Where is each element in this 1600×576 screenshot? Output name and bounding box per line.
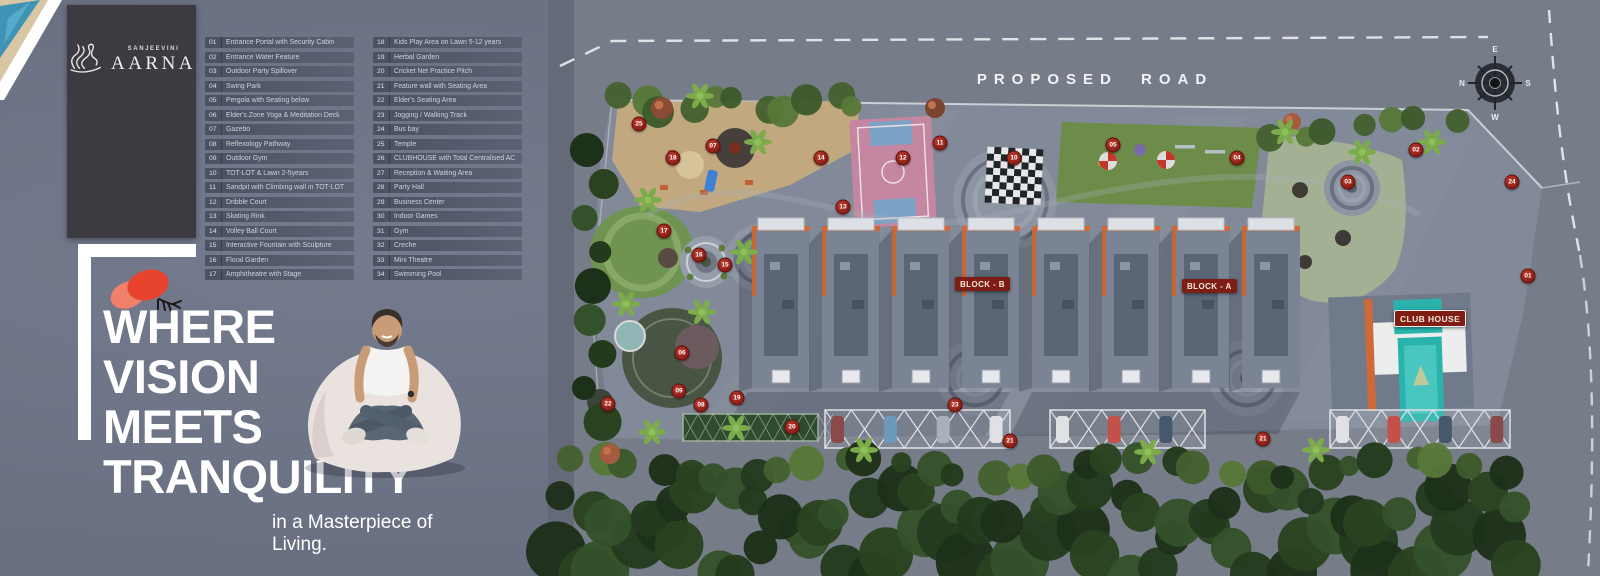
legend-item-label: Cricket Net Practice Pitch bbox=[394, 66, 472, 77]
legend-item-number: 11 bbox=[209, 182, 222, 193]
legend-item-label: Entrance Portal with Security Cabin bbox=[226, 37, 334, 48]
person-photo bbox=[290, 278, 480, 480]
brand-tagline: SANJEEVINI bbox=[128, 46, 180, 52]
legend-item-label: Reflexology Pathway bbox=[226, 139, 290, 150]
legend-item-number: 33 bbox=[377, 255, 390, 266]
legend-item-label: Gym bbox=[394, 226, 409, 237]
legend-item: 22Elder's Seating Area bbox=[373, 95, 522, 106]
legend-item-number: 03 bbox=[209, 66, 222, 77]
legend-item-label: Elder's Seating Area bbox=[394, 95, 456, 106]
legend-item: 14Volley Ball Court bbox=[205, 226, 354, 237]
legend-item: 28Party Hall bbox=[373, 182, 522, 193]
legend-item-number: 05 bbox=[209, 95, 222, 106]
legend-item: 25Temple bbox=[373, 139, 522, 150]
legend-item: 06Elder's Zone Yoga & Meditation Deck bbox=[205, 110, 354, 121]
legend-item: 10TOT-LOT & Lawn 2-5years bbox=[205, 168, 354, 179]
legend-item-number: 06 bbox=[209, 110, 222, 121]
legend-item: 04Swing Park bbox=[205, 81, 354, 92]
legend-item-number: 17 bbox=[209, 269, 222, 280]
legend-item-number: 16 bbox=[209, 255, 222, 266]
legend-item-number: 02 bbox=[209, 52, 222, 63]
legend-item-label: Business Center bbox=[394, 197, 445, 208]
legend-item-label: Entrance Water Feature bbox=[226, 52, 299, 63]
legend-item-label: Floral Garden bbox=[226, 255, 268, 266]
legend-item-number: 22 bbox=[377, 95, 390, 106]
brochure-spread: PROPOSED ROAD E N S W bbox=[0, 0, 1600, 576]
legend-item: 19Herbal Garden bbox=[373, 52, 522, 63]
fountain-plaza bbox=[680, 236, 732, 288]
legend-item: 30Indoor Games bbox=[373, 211, 522, 222]
cricket-net bbox=[683, 414, 833, 441]
legend-item: 02Entrance Water Feature bbox=[205, 52, 354, 63]
legend-item-number: 32 bbox=[377, 240, 390, 251]
legend-item: 03Outdoor Party Spillover bbox=[205, 66, 354, 77]
headline-subtitle: in a Masterpiece of Living. bbox=[272, 512, 462, 556]
swan-logo-icon bbox=[67, 40, 107, 80]
legend-item-label: Swing Park bbox=[226, 81, 261, 92]
legend-item: 31Gym bbox=[373, 226, 522, 237]
legend-item-number: 24 bbox=[377, 124, 390, 135]
legend-item-number: 21 bbox=[377, 81, 390, 92]
legend-item-label: Sandpit with Climbing wall in TOT-LOT bbox=[226, 182, 344, 193]
legend-item-number: 13 bbox=[209, 211, 222, 222]
legend-item-label: Skating Rink bbox=[226, 211, 265, 222]
brand-name: AARNA bbox=[111, 53, 196, 75]
compass-top: E bbox=[1492, 45, 1498, 54]
legend-item: 24Bus bay bbox=[373, 124, 522, 135]
legend-item: 01Entrance Portal with Security Cabin bbox=[205, 37, 354, 48]
legend-column-1: 01Entrance Portal with Security Cabin02E… bbox=[205, 37, 354, 284]
legend-item: 21Feature wall with Seating Area bbox=[373, 81, 522, 92]
legend-item-label: Feature wall with Seating Area bbox=[394, 81, 487, 92]
legend-item-number: 26 bbox=[377, 153, 390, 164]
legend-item-number: 19 bbox=[377, 52, 390, 63]
legend-item-label: Outdoor Party Spillover bbox=[226, 66, 297, 77]
legend-item-label: Kids Play Area on Lawn 5-12 years bbox=[394, 37, 501, 48]
legend-item-number: 01 bbox=[209, 37, 222, 48]
legend-item-label: Party Hall bbox=[394, 182, 424, 193]
frame-bracket-horizontal bbox=[78, 244, 196, 257]
legend-item-label: Herbal Garden bbox=[394, 52, 439, 63]
legend-item-number: 31 bbox=[377, 226, 390, 237]
legend-item-label: Interactive Fountain with Sculpture bbox=[226, 240, 332, 251]
legend-item-label: Outdoor Gym bbox=[226, 153, 267, 164]
legend-item: 32Creche bbox=[373, 240, 522, 251]
legend-item-label: Jogging / Walking Track bbox=[394, 110, 467, 121]
legend-item: 15Interactive Fountain with Sculpture bbox=[205, 240, 354, 251]
legend-item-number: 29 bbox=[377, 197, 390, 208]
legend-item-number: 10 bbox=[209, 168, 222, 179]
legend-item-number: 08 bbox=[209, 139, 222, 150]
legend-item-label: Mini Theatre bbox=[394, 255, 432, 266]
legend-item-label: Elder's Zone Yoga & Meditation Deck bbox=[226, 110, 340, 121]
frame-bracket-vertical bbox=[78, 244, 91, 440]
compass-right: S bbox=[1525, 79, 1531, 88]
compass-bottom: W bbox=[1491, 113, 1499, 122]
legend-item-number: 23 bbox=[377, 110, 390, 121]
legend-item-number: 28 bbox=[377, 182, 390, 193]
legend-item-number: 12 bbox=[209, 197, 222, 208]
legend-item: 11Sandpit with Climbing wall in TOT-LOT bbox=[205, 182, 354, 193]
clubhouse bbox=[1328, 293, 1474, 425]
legend-item-label: Reception & Waiting Area bbox=[394, 168, 472, 179]
legend-item-label: Temple bbox=[394, 139, 416, 150]
corner-photo-fragment bbox=[0, 0, 70, 100]
legend-item-label: Bus bay bbox=[394, 124, 419, 135]
legend-item: 18Kids Play Area on Lawn 5-12 years bbox=[373, 37, 522, 48]
legend-item-number: 14 bbox=[209, 226, 222, 237]
legend-item: 20Cricket Net Practice Pitch bbox=[373, 66, 522, 77]
legend-item: 07Gazebo bbox=[205, 124, 354, 135]
legend-item: 05Pergola with Seating below bbox=[205, 95, 354, 106]
legend-item: 27Reception & Waiting Area bbox=[373, 168, 522, 179]
legend-item: 16Floral Garden bbox=[205, 255, 354, 266]
legend-item-number: 25 bbox=[377, 139, 390, 150]
legend-item: 23Jogging / Walking Track bbox=[373, 110, 522, 121]
legend-item-number: 04 bbox=[209, 81, 222, 92]
legend-item: 29Business Center bbox=[373, 197, 522, 208]
legend-item-number: 15 bbox=[209, 240, 222, 251]
legend-item: 13Skating Rink bbox=[205, 211, 354, 222]
legend-item-label: Indoor Games bbox=[394, 211, 438, 222]
legend-column-2: 18Kids Play Area on Lawn 5-12 years19Her… bbox=[373, 37, 522, 284]
legend-item-number: 07 bbox=[209, 124, 222, 135]
legend-item-label: Dribble Court bbox=[226, 197, 267, 208]
apartment-blocks bbox=[739, 218, 1300, 392]
legend-item-number: 20 bbox=[377, 66, 390, 77]
legend-item-label: TOT-LOT & Lawn 2-5years bbox=[226, 168, 308, 179]
legend-item-label: Creche bbox=[394, 240, 416, 251]
parking-bays bbox=[825, 410, 1510, 448]
legend-item-label: Volley Ball Court bbox=[226, 226, 277, 237]
legend-item: 26CLUBHOUSE with Total Centralised AC bbox=[373, 153, 522, 164]
legend-item-number: 30 bbox=[377, 211, 390, 222]
legend-item-label: Gazebo bbox=[226, 124, 250, 135]
brand-panel: SANJEEVINI AARNA bbox=[67, 5, 196, 238]
legend-item-number: 27 bbox=[377, 168, 390, 179]
legend-item-label: CLUBHOUSE with Total Centralised AC bbox=[394, 153, 515, 164]
legend-item-number: 18 bbox=[377, 37, 390, 48]
proposed-road-label: PROPOSED ROAD bbox=[977, 71, 1213, 88]
legend-item: 09Outdoor Gym bbox=[205, 153, 354, 164]
legend-item-label: Pergola with Seating below bbox=[226, 95, 309, 106]
legend-item: 33Mini Theatre bbox=[373, 255, 522, 266]
legend-item: 12Dribble Court bbox=[205, 197, 354, 208]
legend-item: 08Reflexology Pathway bbox=[205, 139, 354, 150]
legend-item-number: 09 bbox=[209, 153, 222, 164]
compass-left: N bbox=[1459, 79, 1465, 88]
